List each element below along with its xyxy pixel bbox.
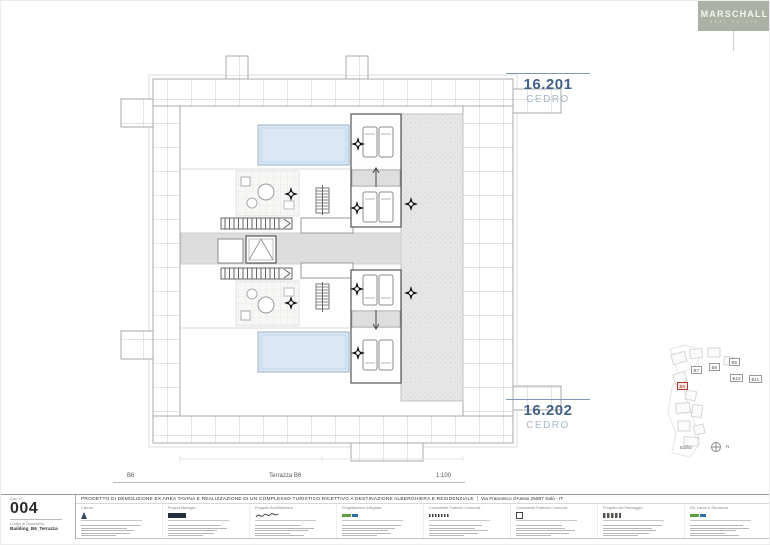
divider xyxy=(168,520,229,521)
project-title-strip: PROGETTO DI DEMOLIZIONE EX AREA TAVINA E… xyxy=(76,495,770,504)
ladder xyxy=(316,282,329,312)
project-manager-logo xyxy=(168,511,244,519)
unit-number: 16.201 xyxy=(506,76,590,93)
consulente-logo-1 xyxy=(429,511,505,519)
title-block: Doc. n° 004 Codice di Documento Building… xyxy=(1,494,770,539)
skylights xyxy=(218,236,276,263)
unit-number: 16.202 xyxy=(506,402,590,419)
column-progetto-architettonico: Progetto Architettonico xyxy=(249,504,336,538)
address-lines xyxy=(690,523,766,536)
scale-bar: B6 Terrazza B6 1:100 xyxy=(113,473,465,483)
brand-name: MARSCHALL xyxy=(701,9,769,19)
column-consulente-pratiche-1: Consulente Pratiche Comunali xyxy=(423,504,510,538)
doc-number: 004 xyxy=(10,501,75,517)
central-strip xyxy=(181,233,401,264)
column-progettazione-integrata: Progettazione integrata xyxy=(336,504,423,538)
divider xyxy=(603,520,664,521)
address-lines xyxy=(516,523,592,536)
keyplan-building-b6-highlighted: B6 xyxy=(677,382,688,390)
address-lines xyxy=(168,523,244,536)
keyplan-building-b5: B5 xyxy=(729,358,740,366)
marschall-logo: MARSCHALL REAL ESTATE xyxy=(698,1,770,31)
address-lines xyxy=(81,523,157,536)
pool-16201 xyxy=(258,125,349,165)
scale-left-label: B6 xyxy=(127,473,134,479)
scale-ratio-label: 1:100 xyxy=(436,473,451,479)
keyplan-building-b8: B8 xyxy=(709,363,720,371)
scale-center-label: Terrazza B6 xyxy=(269,473,301,479)
brand-tagline: REAL ESTATE xyxy=(710,20,759,24)
divider xyxy=(342,520,403,521)
unit-name: CEDRO xyxy=(506,420,590,431)
doc-code-value: Building_B6_Terrazza xyxy=(10,526,75,531)
title-separator: | xyxy=(477,496,478,502)
column-project-manager: Project Manager xyxy=(162,504,249,538)
unit-name: CEDRO xyxy=(506,94,590,105)
pool-16202 xyxy=(258,332,349,372)
keyplan-caption: Edifici xyxy=(680,445,692,450)
address-lines xyxy=(603,523,679,536)
stairs xyxy=(352,310,400,329)
integrata-logo xyxy=(342,511,418,519)
unit-label-16201: 16.201 CEDRO xyxy=(506,73,590,105)
divider xyxy=(429,520,490,521)
divider xyxy=(10,519,62,520)
keyplan-building-b10: B10 xyxy=(730,374,743,382)
address-lines xyxy=(342,523,418,536)
title-block-right: PROGETTO DI DEMOLIZIONE EX AREA TAVINA E… xyxy=(76,495,770,539)
architect-signature-logo xyxy=(255,511,331,519)
sicurezza-logo xyxy=(690,511,766,519)
column-cliente: Cliente xyxy=(76,504,162,538)
gravel-roof-area xyxy=(401,114,463,401)
drawing-sheet: MARSCHALL REAL ESTATE xyxy=(0,0,770,545)
keyplan-building-b11: B11 xyxy=(749,375,762,383)
column-consulente-pratiche-2: Consulente Pratiche Comunali xyxy=(510,504,597,538)
north-label: N xyxy=(726,444,729,449)
address-lines xyxy=(255,523,331,536)
north-arrow-icon xyxy=(712,443,721,452)
divider xyxy=(516,520,577,521)
key-plan: B7 B8 B5 B10 B11 B6 Edifici N xyxy=(666,343,768,461)
divider xyxy=(690,520,751,521)
divider xyxy=(255,520,316,521)
project-title: PROGETTO DI DEMOLIZIONE EX AREA TAVINA E… xyxy=(81,497,474,502)
divider xyxy=(81,520,142,521)
cliente-logo xyxy=(81,511,157,519)
column-progetto-paesaggio: Progetto del Paesaggio xyxy=(597,504,684,538)
unit-label-16202: 16.202 CEDRO xyxy=(506,399,590,431)
key-plan-sketch xyxy=(666,343,768,461)
address-lines xyxy=(429,523,505,536)
stairs xyxy=(352,168,400,187)
column-dir-lavori-sicurezza: Dir. Lavori e Sicurezza xyxy=(684,504,770,538)
consulente-logo-2 xyxy=(516,511,592,519)
ladder xyxy=(316,185,329,215)
project-address: Via Francesco d'Assisi 25087 Salò - IT xyxy=(481,497,563,502)
document-cell: Doc. n° 004 Codice di Documento Building… xyxy=(1,495,76,539)
doc-code-label: Codice di Documento xyxy=(10,522,75,526)
paesaggio-logo xyxy=(603,511,679,519)
stakeholder-columns: Cliente Project Manager Proget xyxy=(76,504,770,539)
keyplan-building-b7: B7 xyxy=(691,366,702,374)
logo-tick-line xyxy=(733,31,734,51)
